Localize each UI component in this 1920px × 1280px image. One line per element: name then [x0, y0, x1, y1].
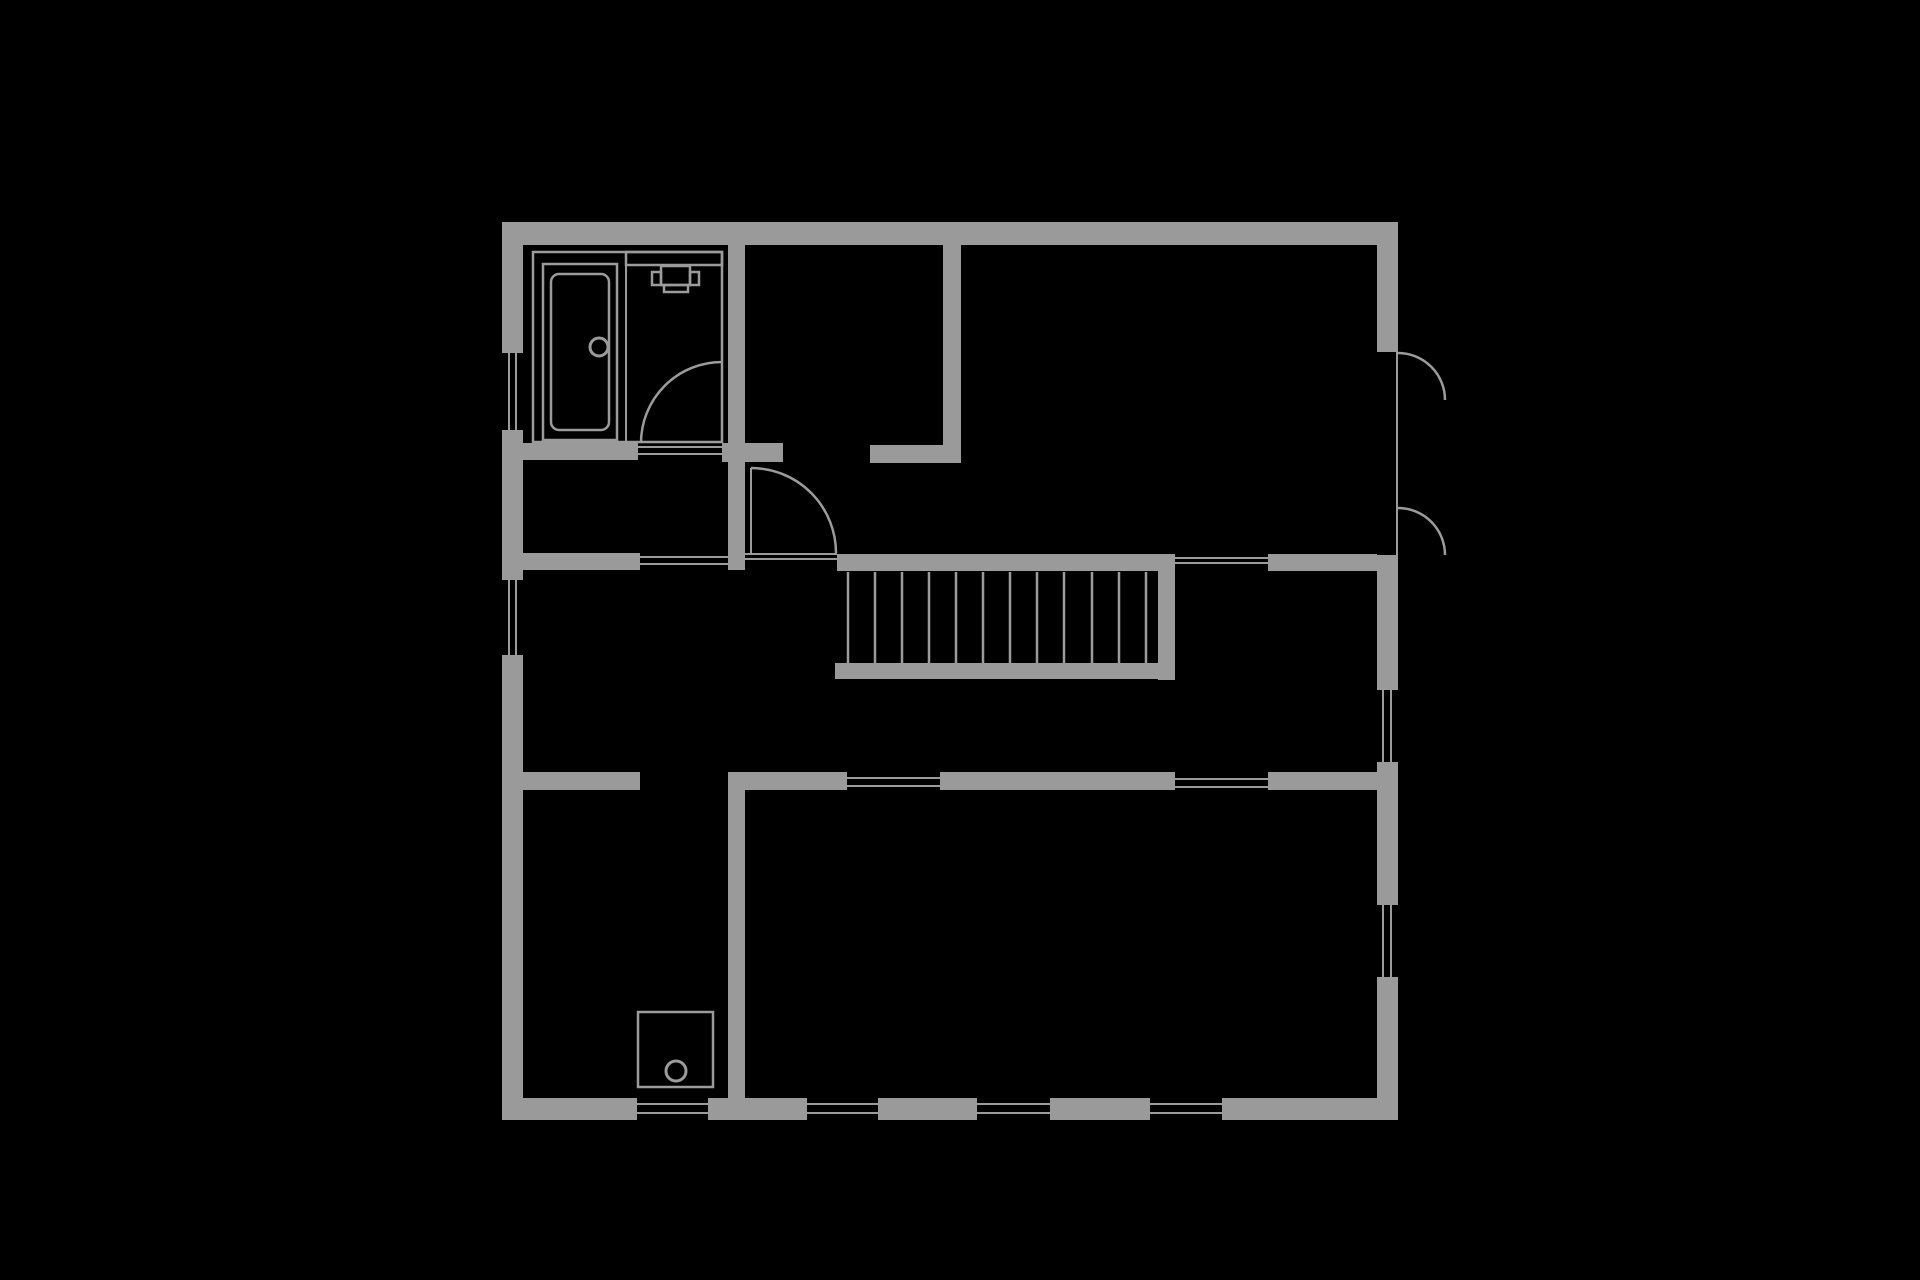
window-glass-line — [1150, 1112, 1222, 1114]
wall-segment — [837, 554, 1175, 571]
wall-segment — [722, 443, 783, 462]
opening-threshold-line — [1175, 786, 1268, 788]
window-glass-line — [1382, 690, 1384, 762]
window-glass-line — [807, 1103, 878, 1105]
window-glass-line — [637, 1112, 708, 1114]
opening-threshold-line — [847, 785, 940, 787]
wall-segment — [870, 445, 961, 463]
wall-segment — [512, 772, 640, 790]
opening-threshold-line — [1175, 778, 1268, 780]
wall-segment — [1377, 555, 1398, 690]
wall-segment — [728, 772, 847, 790]
wall-segment — [728, 245, 745, 570]
opening-threshold-line — [640, 556, 728, 558]
window-glass-line — [807, 1112, 878, 1114]
opening-threshold-line — [745, 553, 837, 555]
wall-segment — [502, 1098, 637, 1120]
window-glass-line — [508, 580, 510, 655]
floor-plan-page — [0, 0, 1920, 1280]
wall-segment — [1050, 1098, 1150, 1120]
window-glass-line — [1390, 905, 1392, 977]
wall-segment — [1268, 772, 1377, 790]
window-glass-line — [515, 580, 517, 655]
wall-segment — [502, 222, 523, 353]
window-glass-line — [977, 1112, 1050, 1114]
wall-segment — [512, 553, 640, 570]
wall-segment — [728, 790, 745, 1120]
opening-threshold-line — [1175, 562, 1268, 564]
window-glass-line — [508, 353, 510, 430]
opening-threshold-line — [638, 446, 722, 448]
window-glass-line — [1382, 905, 1384, 977]
wall-segment — [1268, 554, 1377, 571]
bathroom-divider-line — [625, 252, 627, 442]
wall-segment — [878, 1098, 977, 1120]
wall-segment — [708, 1098, 807, 1120]
wall-segment — [502, 655, 523, 1120]
background — [0, 0, 1920, 1280]
opening-threshold-line — [847, 777, 940, 779]
window-glass-line — [637, 1103, 708, 1105]
wall-segment — [1377, 762, 1398, 905]
opening-threshold-line — [745, 558, 837, 560]
wall-segment — [512, 443, 638, 460]
floor-plan-canvas — [0, 0, 1920, 1280]
wall-segment — [835, 663, 1175, 679]
opening-threshold-line — [638, 453, 722, 455]
opening-threshold-line — [1175, 557, 1268, 559]
wall-segment — [1222, 1098, 1398, 1120]
window-glass-line — [977, 1103, 1050, 1105]
wall-segment — [940, 772, 1175, 790]
door-leaf — [750, 468, 752, 553]
wall-segment — [502, 222, 1398, 245]
window-glass-line — [1390, 690, 1392, 762]
window-glass-line — [1150, 1103, 1222, 1105]
wall-segment — [943, 245, 961, 445]
window-glass-line — [1396, 352, 1398, 555]
opening-threshold-line — [640, 563, 728, 565]
window-glass-line — [515, 353, 517, 430]
wall-segment — [1377, 222, 1398, 352]
